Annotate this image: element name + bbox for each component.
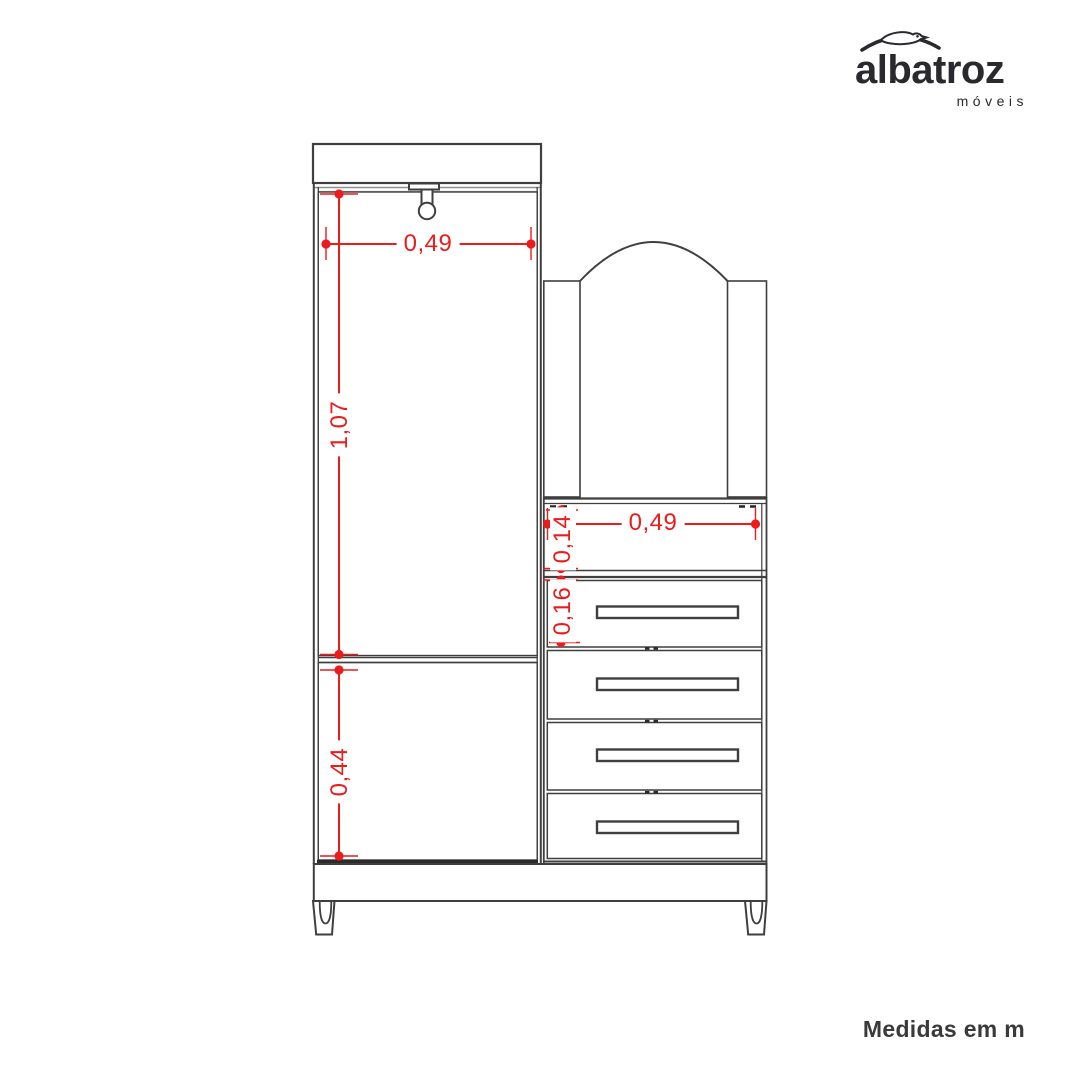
- dimension-label-lower-door-height: 0,44: [327, 741, 353, 804]
- dimension-label-door-height: 1,07: [327, 394, 353, 457]
- page: 0,49 1,07 0,44 0,49 0,14 0,16 albatroz m…: [0, 0, 1080, 1080]
- brand-subtitle: móveis: [957, 94, 1028, 108]
- drawer-stop-marks: [645, 647, 658, 793]
- dimension-label-drawer-height: 0,16: [550, 580, 576, 643]
- base-and-feet: [313, 864, 767, 935]
- brand-logo: albatroz móveis: [855, 22, 1030, 102]
- drawer-1-handle: [597, 607, 738, 619]
- dimension-label-wardrobe-width: 0,49: [397, 231, 460, 257]
- drawer-2-handle: [597, 679, 738, 691]
- dimension-label-shelf-gap: 0,14: [550, 508, 576, 571]
- vanity-section: [544, 242, 767, 864]
- coat-hook: [409, 184, 439, 220]
- mirror-left-post: [544, 281, 580, 497]
- brand-name: albatroz: [855, 46, 1004, 94]
- units-note: Medidas em m: [863, 1016, 1025, 1043]
- drawer-3-handle: [597, 750, 738, 762]
- mirror-right-post: [728, 281, 767, 497]
- wardrobe-crown: [313, 144, 541, 183]
- dimension-label-chest-width: 0,49: [622, 510, 685, 536]
- drawer-stack: [547, 581, 762, 859]
- mirror-arch: [580, 242, 728, 281]
- base-plinth: [314, 864, 767, 901]
- furniture-drawing: [0, 0, 1080, 1080]
- right-foot: [745, 901, 767, 935]
- coat-hook-knob: [419, 203, 435, 219]
- drawer-4-handle: [597, 822, 738, 834]
